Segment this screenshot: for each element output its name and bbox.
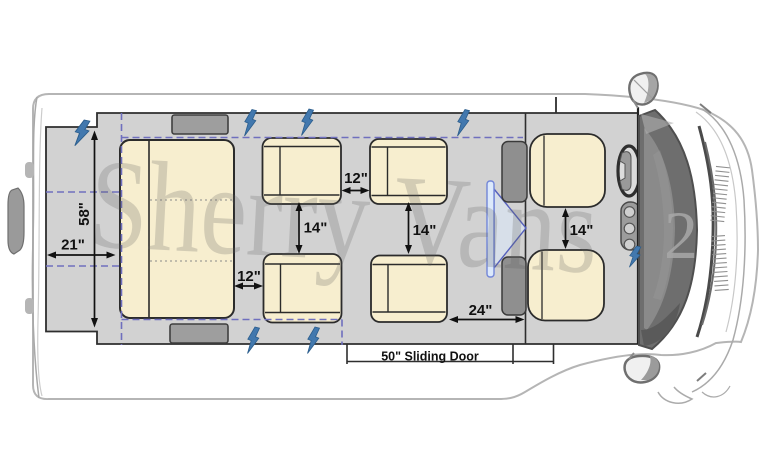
svg-text:14": 14" [570, 222, 594, 239]
svg-text:14": 14" [304, 220, 328, 237]
svg-text:Sherry Vans: Sherry Vans [87, 134, 602, 301]
svg-text:14": 14" [413, 222, 437, 239]
svg-text:12": 12" [344, 170, 368, 187]
svg-text:21": 21" [61, 237, 85, 254]
svg-text:2: 2 [664, 197, 698, 273]
svg-text:12": 12" [237, 268, 261, 285]
svg-text:58": 58" [76, 202, 93, 226]
svg-text:24": 24" [469, 302, 493, 319]
svg-text:50" Sliding Door: 50" Sliding Door [381, 350, 479, 364]
